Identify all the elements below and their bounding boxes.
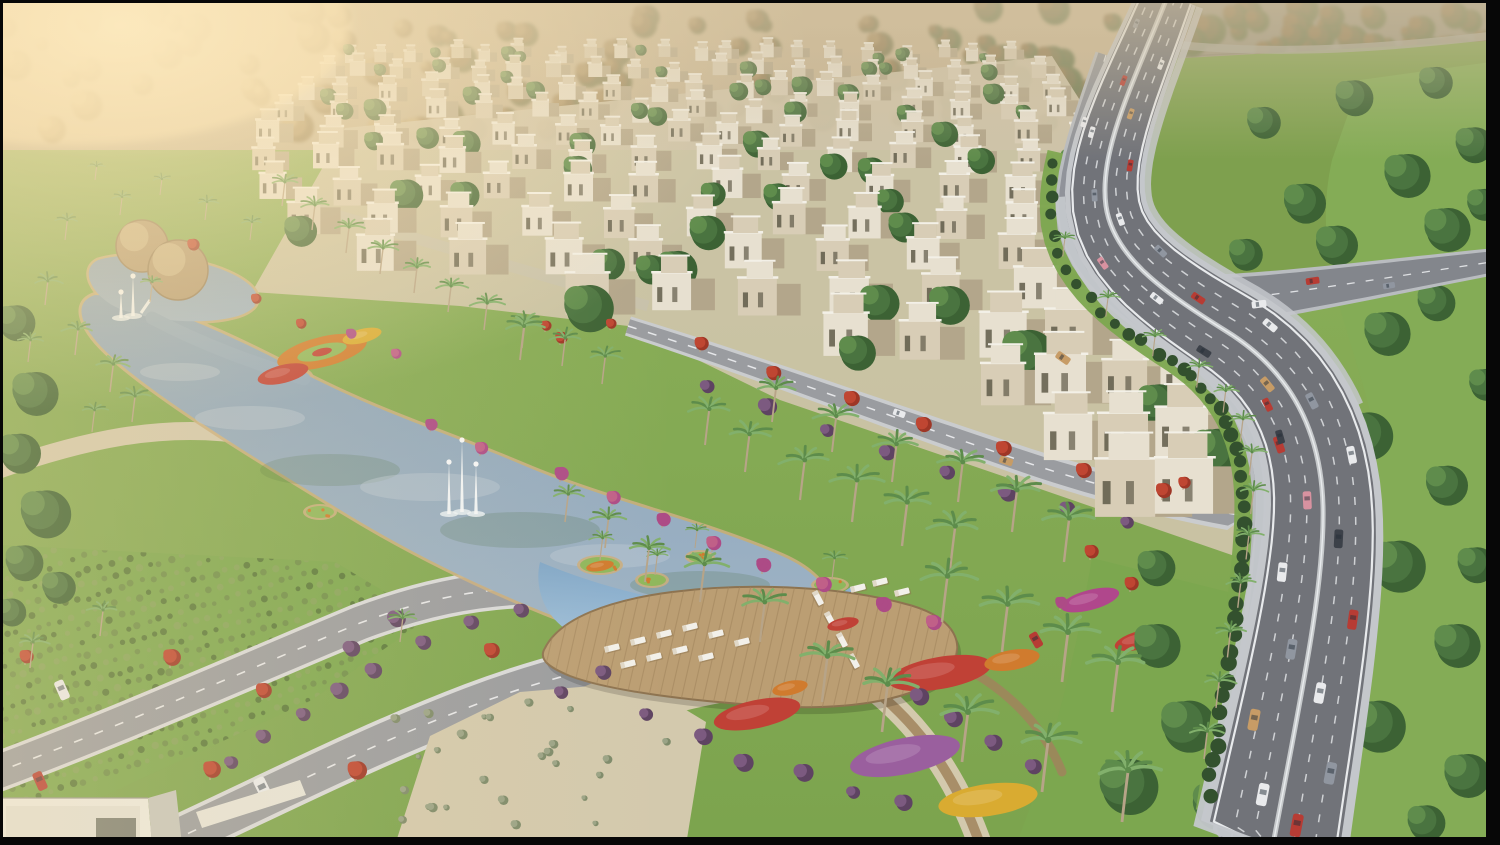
community-aerial-rendering [0,0,1500,845]
rendered-image-frame [0,0,1500,845]
warm-light-overlay [0,0,1500,845]
